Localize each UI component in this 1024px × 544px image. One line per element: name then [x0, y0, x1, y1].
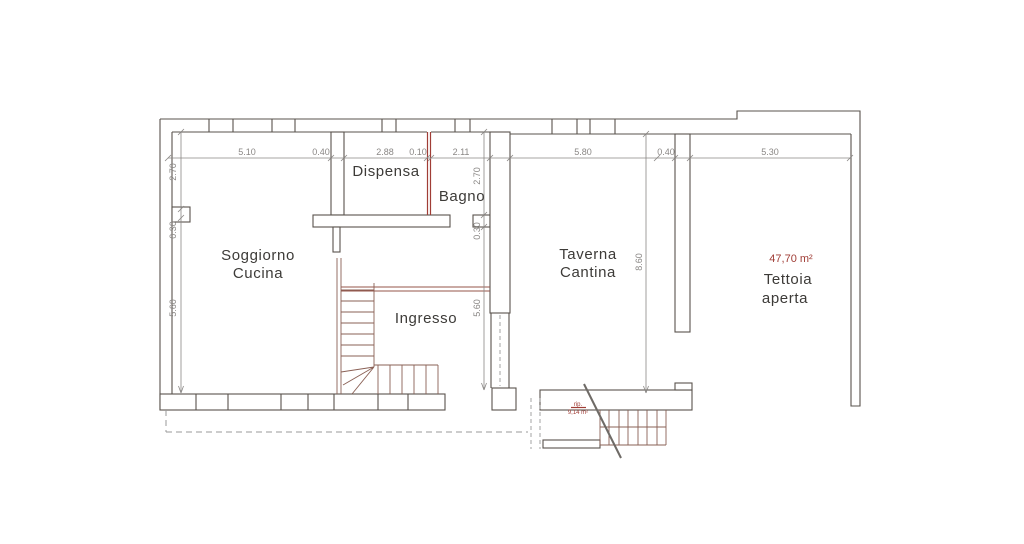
dim-label: 2.88 — [376, 147, 394, 157]
area-label-tettoia: 47,70 m² — [769, 253, 813, 265]
room-label-taverna: Taverna — [559, 246, 617, 263]
wall-south-taverna — [540, 390, 692, 410]
room-label-bagno: Bagno — [439, 188, 485, 205]
wall-taverna-tettoia — [675, 134, 690, 332]
room-label-ingresso: Ingresso — [395, 310, 457, 327]
dim-label: 5.10 — [238, 147, 256, 157]
room-label-aperta: aperta — [762, 290, 808, 307]
dim-label: 0.40 — [657, 147, 675, 157]
dim-label: 0.10 — [409, 147, 427, 157]
room-label-tettoia: Tettoia — [764, 271, 812, 288]
dim-label: 5.60 — [168, 299, 178, 317]
room-label-dispensa: Dispensa — [352, 163, 419, 180]
dim-label: 2.70 — [472, 167, 482, 185]
dim-label: 0.30 — [472, 222, 482, 240]
wall-stub-dispensa — [331, 132, 344, 215]
room-label-rip: rip. — [574, 402, 583, 408]
dim-label: 2.70 — [168, 163, 178, 181]
dim-label: 5.30 — [761, 147, 779, 157]
wall-rip-south — [543, 440, 600, 448]
dim-label: 8.60 — [634, 253, 644, 271]
room-label-cucina: Cucina — [233, 265, 283, 282]
dim-label: 2.11 — [453, 147, 470, 157]
dim-label: 0.40 — [312, 147, 330, 157]
floor-plan-svg: 5.10 0.40 2.88 0.10 2.11 5.80 0.40 5.30 … — [0, 0, 1024, 544]
room-label-soggiorno: Soggiorno — [221, 247, 295, 264]
room-label-cantina: Cantina — [560, 264, 616, 281]
dim-label: 0.30 — [168, 221, 178, 239]
dim-label: 5.60 — [472, 299, 482, 317]
floor-plan-page: 5.10 0.40 2.88 0.10 2.11 5.80 0.40 5.30 … — [0, 0, 1024, 544]
wall-dispensa-south — [313, 215, 450, 227]
area-label-rip: 9,14 m² — [568, 410, 588, 416]
wall-south-left — [160, 394, 445, 410]
wall-bagno-taverna — [490, 132, 510, 313]
dim-label: 5.80 — [574, 147, 592, 157]
pillar — [492, 388, 516, 410]
